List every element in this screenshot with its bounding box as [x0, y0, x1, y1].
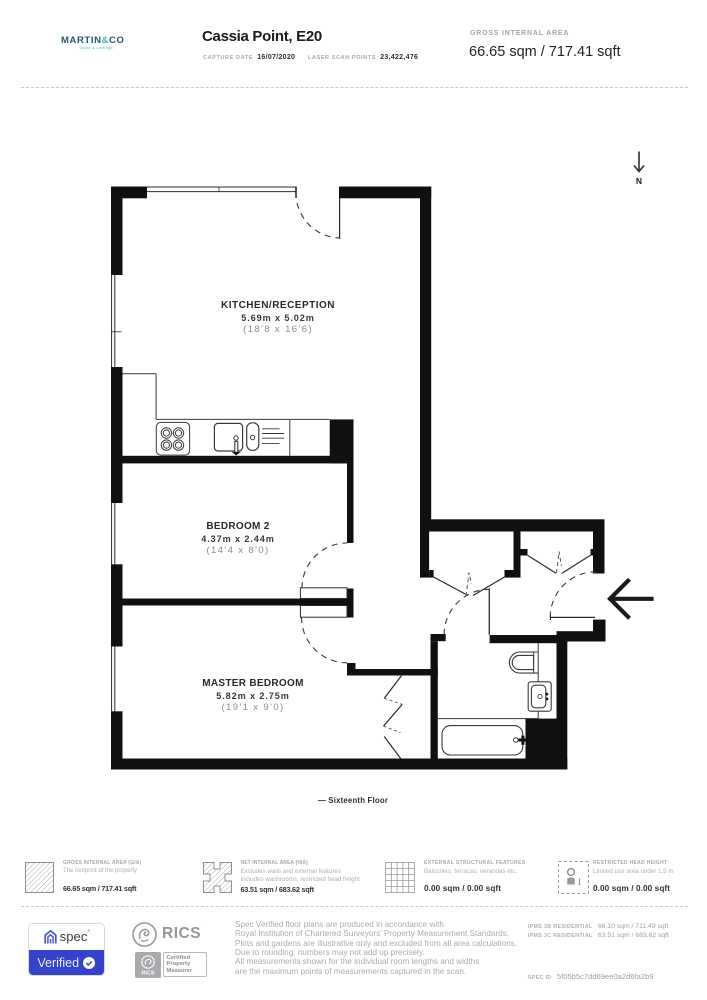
svg-text:RICS: RICS: [141, 970, 154, 976]
svg-text:I: I: [578, 877, 581, 887]
